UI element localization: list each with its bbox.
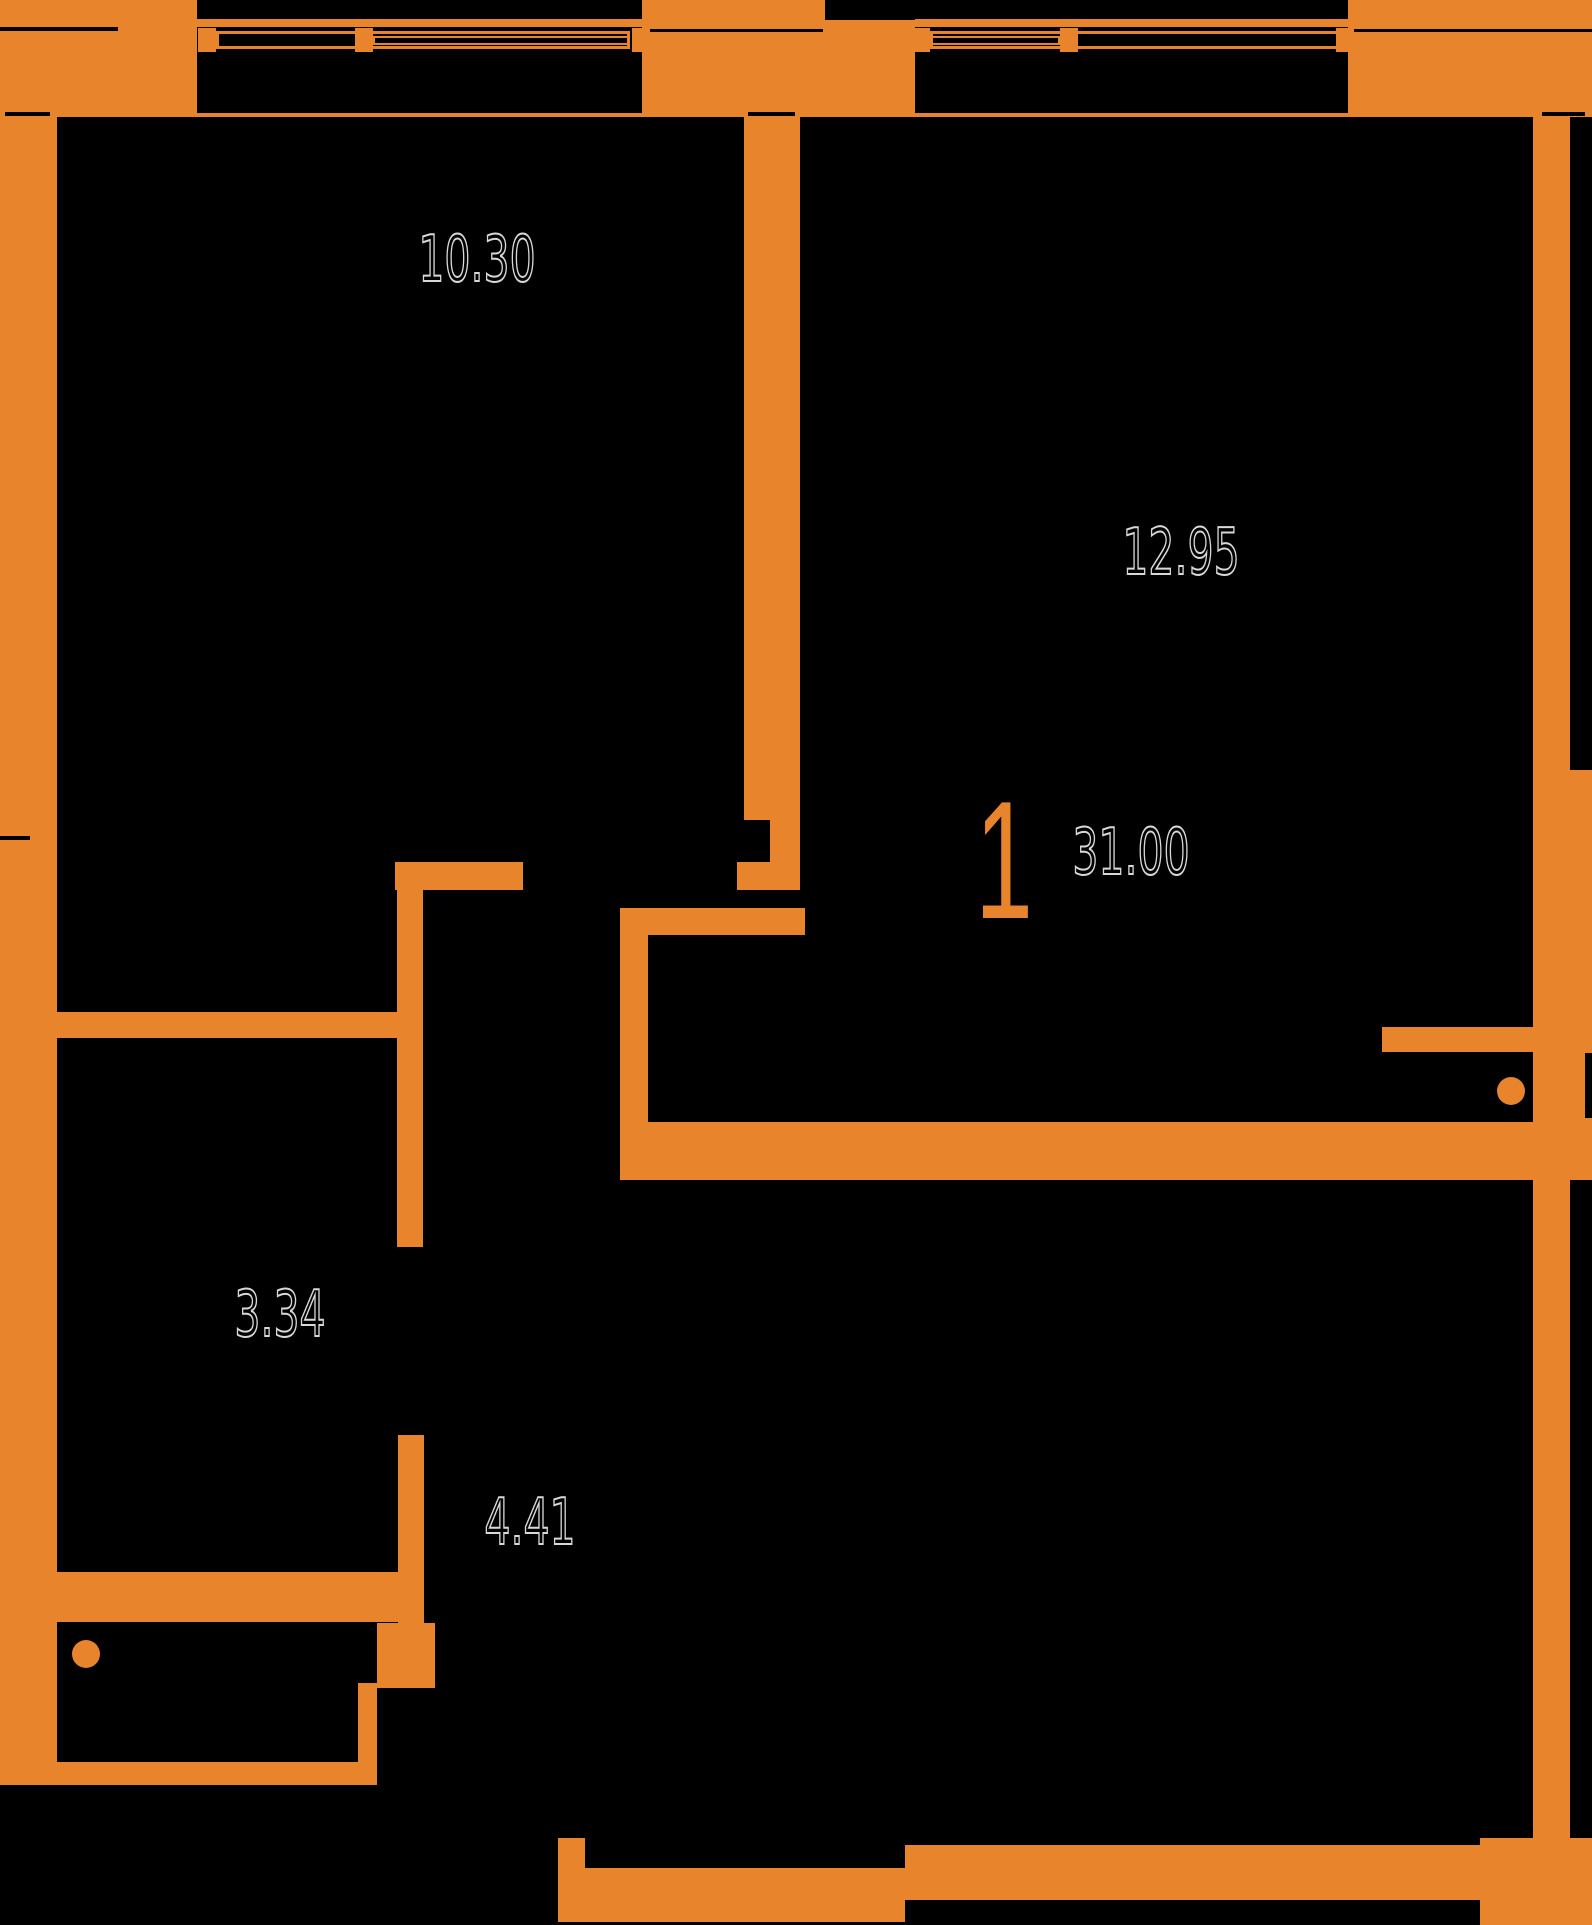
wall-room3-bottom-thick xyxy=(57,1572,398,1622)
window-top-left-bracket xyxy=(632,28,650,52)
wall-bottom-band-right xyxy=(905,1845,1533,1900)
window-top-right-sash xyxy=(930,36,1060,45)
window-top-left-inner-face xyxy=(197,113,642,117)
window-top-left-ledge xyxy=(197,19,642,27)
wall-joint-notch xyxy=(1350,29,1592,32)
wall-right-outer-upper xyxy=(1533,117,1570,770)
apartment-unit-number: 1 xyxy=(975,776,1033,944)
window-top-right-bracket xyxy=(912,28,930,52)
wall-joint-notch xyxy=(1585,1053,1592,1118)
corner-block-top-left xyxy=(0,0,197,117)
area-label-room-top-right: 12.95 xyxy=(1122,521,1239,585)
wall-room-divider-step xyxy=(770,820,800,862)
window-top-right-ledge xyxy=(915,19,1348,27)
wall-hall-left-upper xyxy=(397,862,423,1247)
fixture-dot-entry xyxy=(1497,1077,1525,1105)
wall-room3-top xyxy=(57,1012,423,1038)
wall-hall-left-block xyxy=(377,1623,435,1688)
wall-joint-notch xyxy=(825,0,915,20)
wall-entry-niche-top xyxy=(1382,1027,1548,1052)
wall-right-outer-middle xyxy=(1533,770,1592,1180)
wall-hall-left-lower xyxy=(398,1435,424,1623)
wall-joint-notch xyxy=(0,27,118,31)
wall-joint-notch xyxy=(748,112,795,116)
wall-joint-notch xyxy=(0,836,30,840)
wall-joint-notch xyxy=(5,112,50,116)
corner-block-top-right xyxy=(1348,0,1592,117)
wall-room-divider xyxy=(744,117,800,820)
window-top-right-bracket xyxy=(1060,28,1078,52)
window-top-right-inner-face xyxy=(915,113,1348,117)
wall-right-outer-lower xyxy=(1533,1180,1570,1845)
wall-vestibule-bottom xyxy=(53,1762,377,1785)
wall-left-outer xyxy=(0,117,57,1785)
wall-joint-notch xyxy=(650,29,823,32)
floor-plan: 10.30 12.95 1 31.00 3.34 4.41 xyxy=(0,0,1592,1925)
fixture-dot-vestibule xyxy=(72,1640,100,1668)
area-label-room-mid-left: 3.34 xyxy=(234,1283,325,1347)
window-top-left-sash xyxy=(373,36,630,45)
area-label-room-top-left: 10.30 xyxy=(418,228,535,292)
wall-hall-bottom-band xyxy=(620,1122,1592,1180)
wall-joint-notch xyxy=(1542,112,1585,116)
apartment-total-area: 31.00 xyxy=(1072,821,1189,885)
wall-hall-right-top xyxy=(620,908,805,935)
wall-room-divider-cap xyxy=(737,862,800,890)
area-label-hall: 4.41 xyxy=(484,1491,575,1555)
window-top-right-bracket xyxy=(1336,28,1354,52)
window-top-left-bracket xyxy=(198,28,216,52)
wall-hall-right xyxy=(620,935,648,1122)
wall-bottom-band-left xyxy=(558,1868,905,1922)
window-top-left-bracket xyxy=(355,28,373,52)
